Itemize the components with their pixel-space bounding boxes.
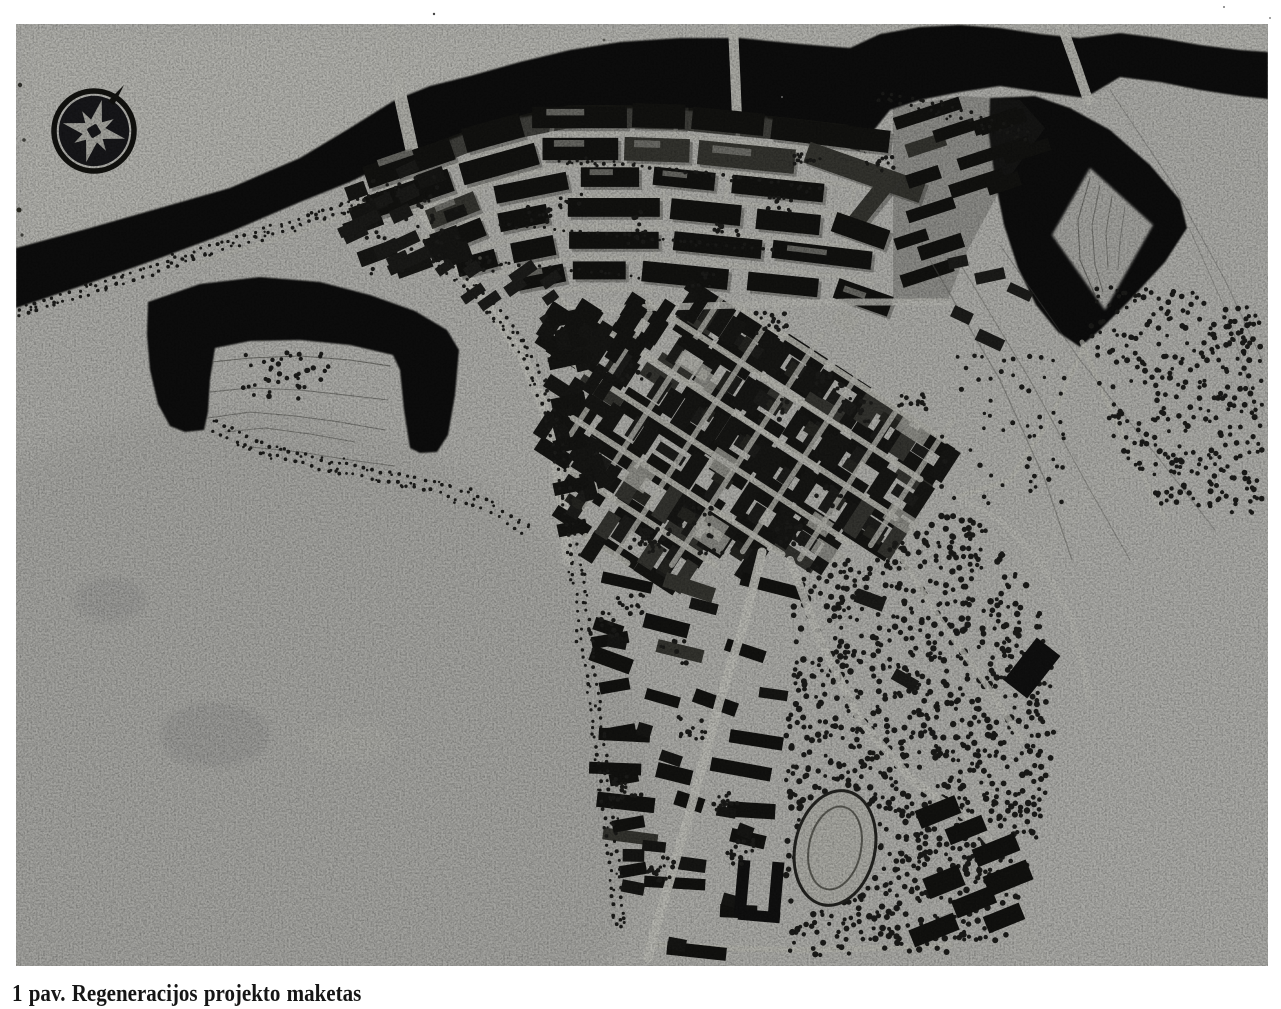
- svg-text:1 pav. Regeneracijos projekto: 1 pav. Regeneracijos projekto maketas: [12, 980, 361, 1007]
